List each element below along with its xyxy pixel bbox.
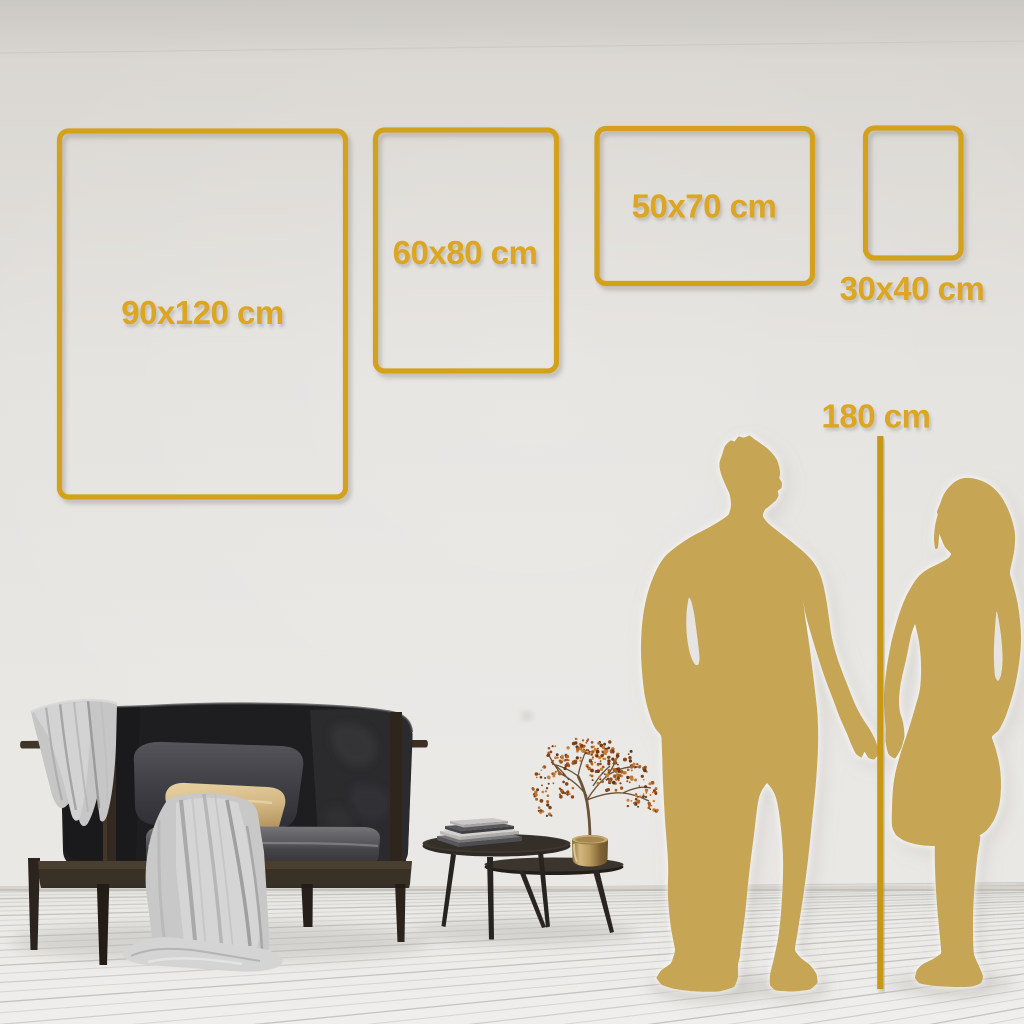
svg-text:60x80 cm: 60x80 cm xyxy=(393,234,538,271)
svg-text:90x120 cm: 90x120 cm xyxy=(121,294,283,331)
svg-text:30x40 cm: 30x40 cm xyxy=(840,270,985,307)
svg-text:50x70 cm: 50x70 cm xyxy=(632,188,777,225)
svg-text:180 cm: 180 cm xyxy=(822,398,931,435)
